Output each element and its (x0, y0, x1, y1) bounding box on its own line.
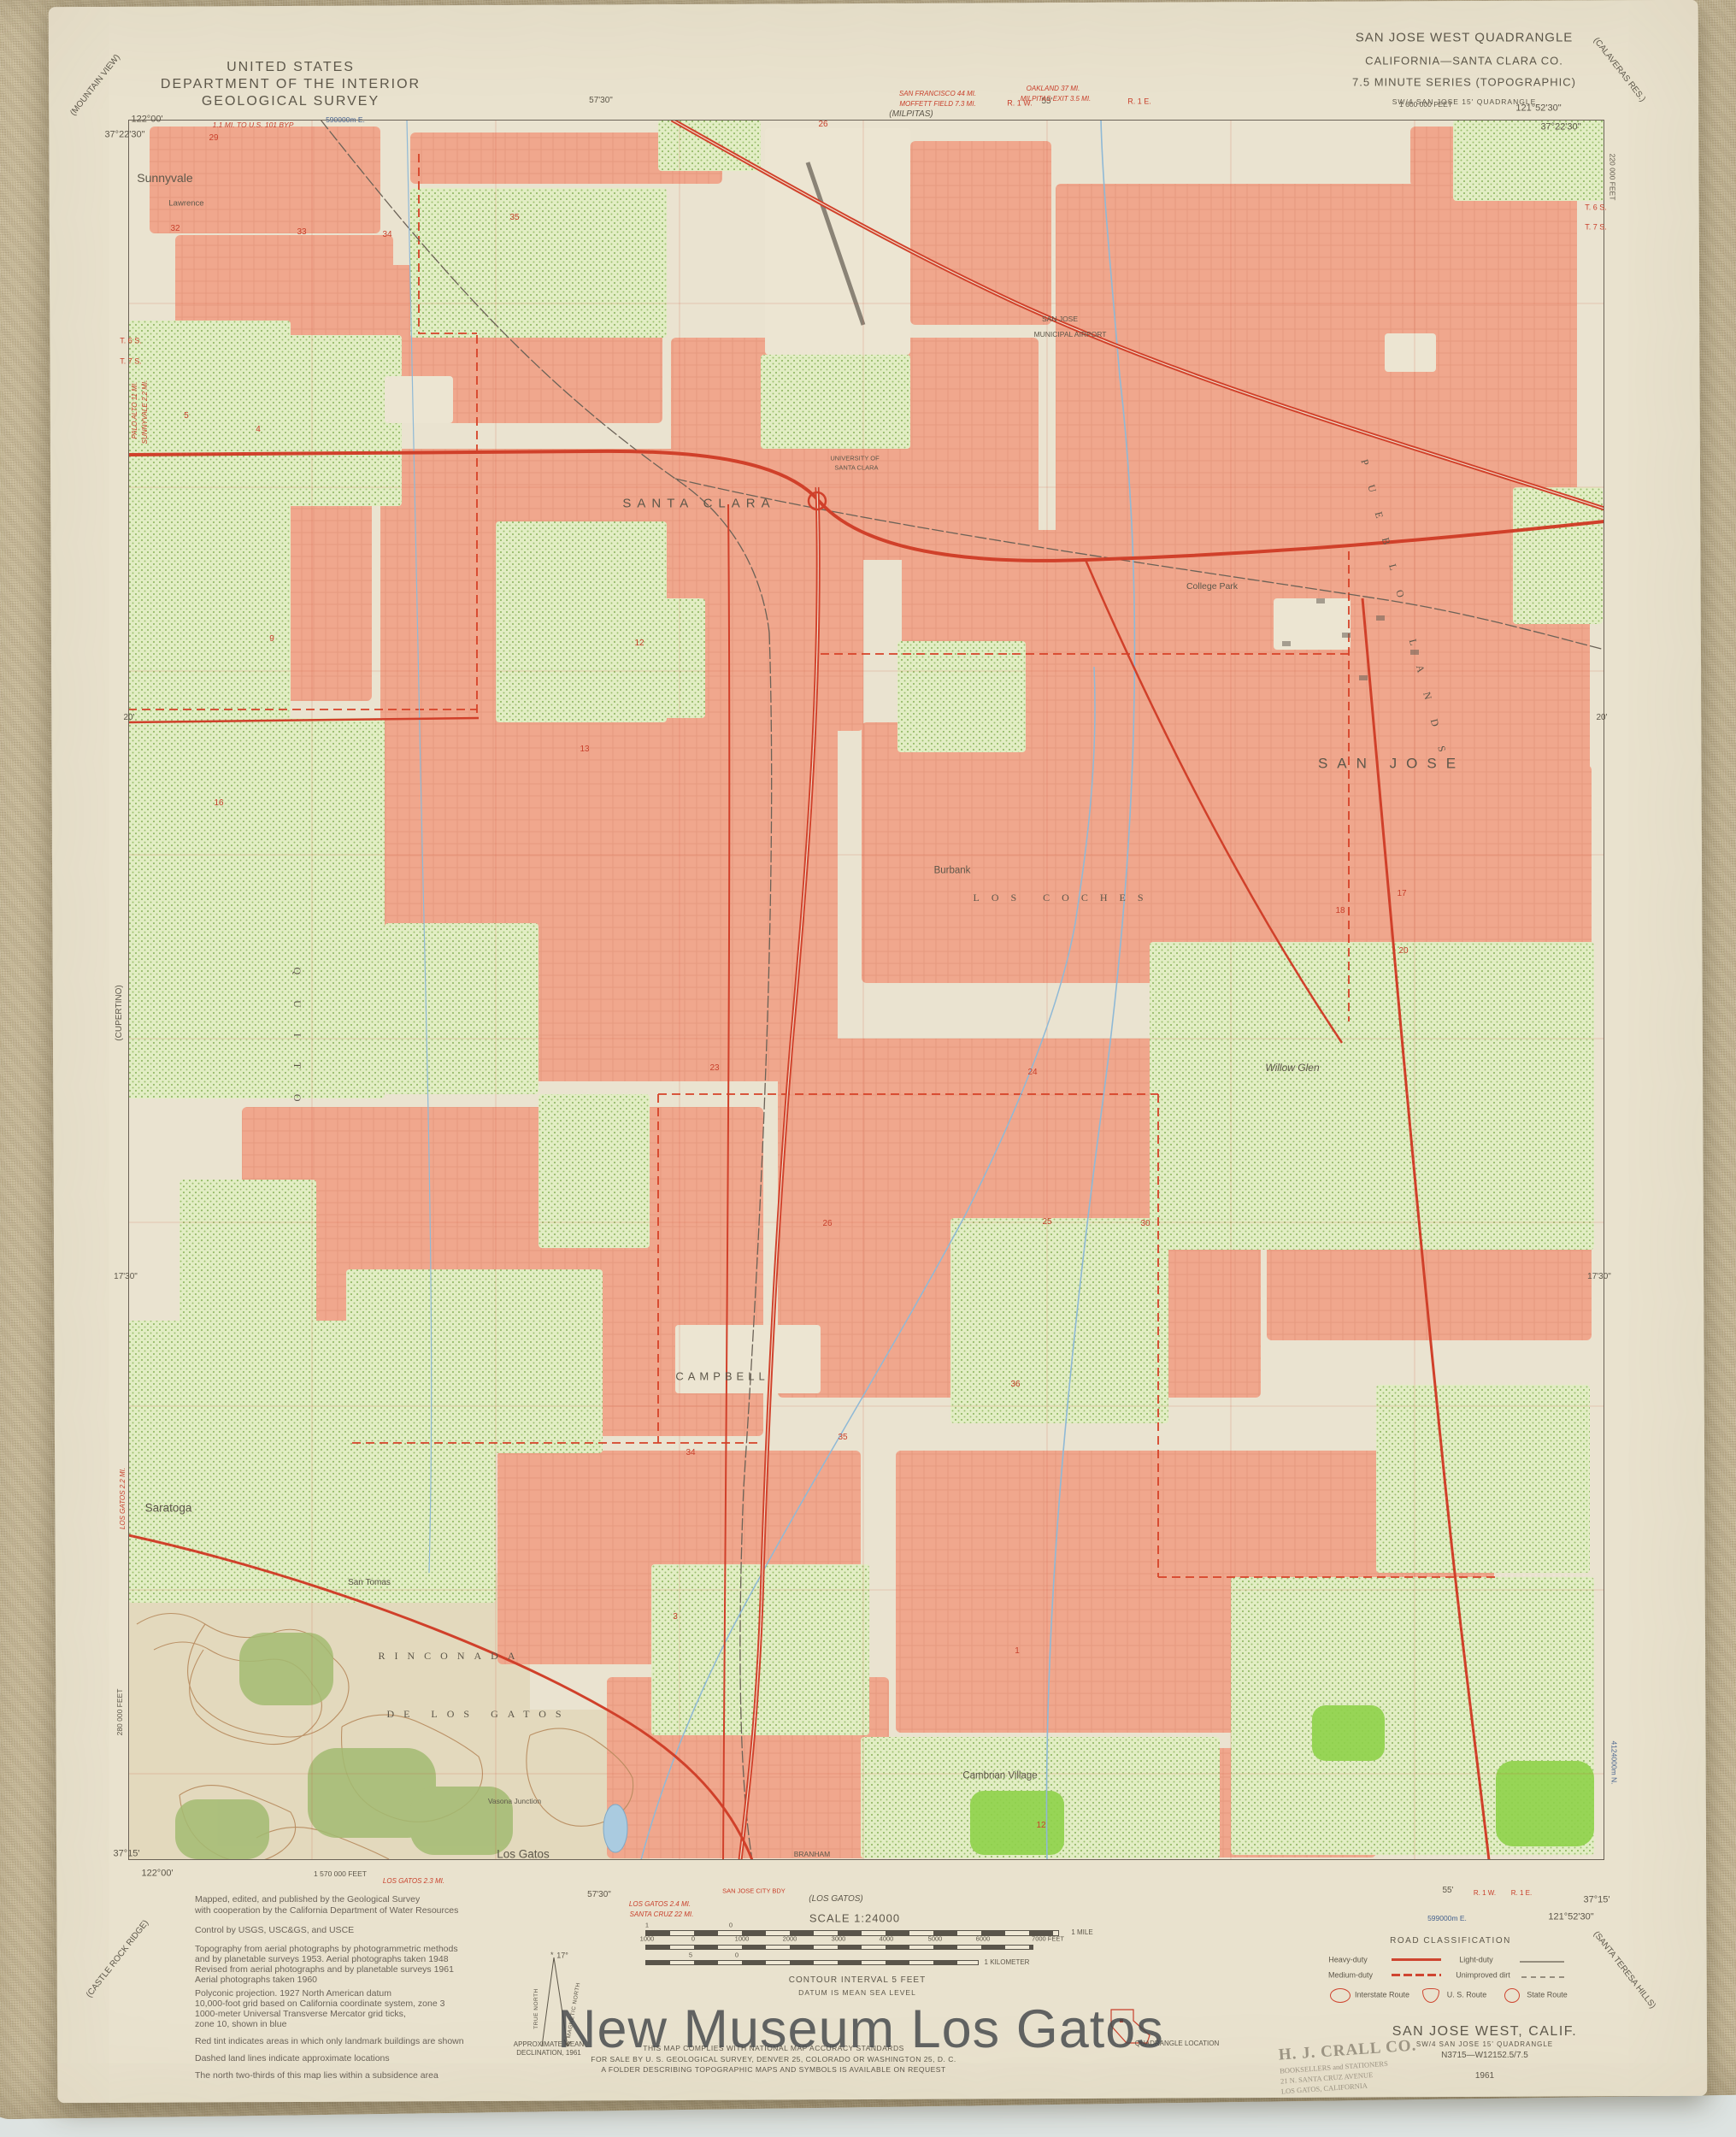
map-label: SANTA CLARA (834, 464, 878, 471)
section-number: 25 (1042, 1218, 1051, 1227)
credit-line: 1000-meter Universal Transverse Mercator… (195, 2010, 406, 2019)
margin-label: SANTA CRUZ 22 MI. (630, 1911, 694, 1918)
margin-label: 1.1 MI. TO U.S. 101 BYP (213, 121, 294, 129)
margin-label: (MILPITAS) (889, 110, 933, 119)
margin-label: 5000 (928, 1935, 943, 1942)
section-number: 32 (170, 225, 179, 233)
margin-label: 17'30" (114, 1273, 138, 1281)
datum-note: DATUM IS MEAN SEA LEVEL (798, 1989, 916, 1997)
section-number: 36 (1010, 1381, 1020, 1389)
section-number: 12 (1036, 1822, 1045, 1830)
map-body (128, 120, 1604, 1860)
margin-label: 37°15' (1584, 1896, 1610, 1905)
section-number: 33 (297, 228, 306, 237)
margin-label: 3000 (832, 1935, 846, 1942)
margin-label: 2000 (783, 1935, 797, 1942)
map-label: RINCONADA (379, 1651, 525, 1661)
map-label: DE LOS GATOS (386, 1709, 570, 1719)
section-number: 3 (673, 1613, 678, 1622)
margin-label: 280 000 FEET (116, 1689, 124, 1736)
margin-label: SAN JOSE CITY BDY (722, 1887, 786, 1894)
credit-line: Control by USGS, USC&GS, and USCE (195, 1926, 354, 1935)
scale-title: SCALE 1:24000 (809, 1913, 900, 1924)
road-class-light-label: Light-duty (1459, 1957, 1493, 1964)
margin-label: OAKLAND 37 MI. (1027, 85, 1080, 92)
quad-title-line1: SAN JOSE WEST QUADRANGLE (1356, 31, 1574, 45)
map-label: QUITO (292, 967, 303, 1127)
credit-line: zone 10, shown in blue (195, 2020, 286, 2029)
section-number: 13 (580, 745, 589, 754)
margin-label: 37°22'30" (104, 131, 144, 140)
section-number: 16 (214, 799, 223, 808)
road-class-heavy-label: Heavy-duty (1328, 1957, 1368, 1964)
credit-line: Dashed land lines indicate approximate l… (195, 2054, 390, 2063)
heavy-duty-line-sample (1392, 1958, 1441, 1961)
unimproved-line-sample (1521, 1976, 1566, 1978)
interstate-shield-icon (1330, 1988, 1351, 2003)
section-number: 34 (686, 1449, 695, 1457)
credit-line: The north two-thirds of this map lies wi… (195, 2071, 438, 2081)
true-north-label: TRUE NORTH (534, 1988, 540, 2029)
margin-label: LOS GATOS 2.2 MI. (120, 1468, 127, 1529)
margin-label: 4124000m N. (1610, 1740, 1618, 1784)
margin-label: 122°00' (141, 1869, 173, 1879)
road-class-title: ROAD CLASSIFICATION (1390, 1937, 1511, 1946)
margin-label: LOS GATOS 2.3 MI. (383, 1878, 444, 1885)
place-label-los-gatos: Los Gatos (497, 1848, 550, 1860)
place-label-airport: MUNICIPAL AIRPORT (1034, 331, 1107, 339)
margin-label: 1 570 000 FEET (314, 1870, 367, 1878)
map-label: UNIVERSITY OF (830, 455, 879, 462)
section-number: 30 (1140, 1220, 1150, 1228)
road-class-unimproved-label: Unimproved dirt (1456, 1972, 1510, 1980)
section-number: 35 (838, 1433, 847, 1442)
margin-label: 1 KILOMETER (985, 1959, 1030, 1966)
margin-label: PALO ALTO 11 MI. (132, 382, 138, 439)
margin-label: 37°22'30" (1540, 123, 1580, 132)
margin-label: 4000 (880, 1935, 894, 1942)
credit-line: Topography from aerial photographs by ph… (195, 1945, 458, 1954)
section-number: 9 (269, 635, 274, 644)
margin-label: 1000 (735, 1935, 750, 1942)
scale-bar-feet (645, 1945, 1033, 1950)
margin-label: T. 6 S. (1585, 204, 1607, 212)
margin-label: 0 (729, 1922, 733, 1928)
place-label-burbank: Burbank (934, 866, 971, 876)
usgs-header-line3: GEOLOGICAL SURVEY (202, 94, 380, 109)
map-name: SAN JOSE WEST, CALIF. (1392, 2025, 1577, 2039)
usgs-header-line1: UNITED STATES (227, 60, 355, 75)
credit-line: Mapped, edited, and published by the Geo… (195, 1895, 420, 1904)
map-label: BRANHAM (794, 1851, 831, 1858)
margin-label: 121°52'30" (1515, 104, 1561, 114)
margin-label: 0 (691, 1935, 695, 1942)
place-label-campbell: CAMPBELL (675, 1371, 768, 1382)
place-label-college-park: College Park (1186, 582, 1238, 592)
margin-label: 17'30" (1587, 1273, 1611, 1281)
margin-label: SAN FRANCISCO 44 MI. (899, 91, 976, 97)
quad-title-line2: CALIFORNIA—SANTA CLARA CO. (1365, 55, 1563, 68)
margin-label: 122°00' (131, 115, 162, 125)
margin-label: 1000 (640, 1935, 655, 1942)
interstate-route-label: Interstate Route (1355, 1992, 1409, 1999)
margin-label: 5 (689, 1952, 692, 1958)
margin-label: T. 7 S. (1585, 224, 1607, 232)
margin-label: 6000 (976, 1935, 991, 1942)
map-label: LOS COCHES (973, 892, 1155, 903)
margin-label: LOS GATOS 2.4 MI. (629, 1901, 691, 1908)
margin-label: T. 7 S. (120, 358, 142, 366)
section-number: 34 (382, 231, 391, 239)
scale-bar-km (645, 1960, 979, 1965)
usgs-header-line2: DEPARTMENT OF THE INTERIOR (161, 77, 421, 92)
map-name-sub: SW/4 SAN JOSE 15' QUADRANGLE (1416, 2041, 1553, 2048)
contour-interval-note: CONTOUR INTERVAL 5 FEET (789, 1976, 926, 1985)
map-code: N3715—W12152.5/7.5 (1441, 2052, 1528, 2060)
museum-watermark: New Museum Los Gatos (557, 1999, 1164, 2060)
section-number: 12 (634, 639, 644, 648)
place-label-san-tomas: San Tomas (348, 1579, 391, 1587)
place-label-lawrence: Lawrence (168, 199, 203, 208)
section-number: 20 (1398, 947, 1408, 956)
section-number: 29 (209, 134, 218, 143)
margin-label: 599000m E. (1427, 1915, 1467, 1922)
credit-line: 10,000-foot grid based on California coo… (195, 1999, 444, 2009)
margin-label: 0 (735, 1952, 739, 1958)
section-number: 26 (822, 1220, 832, 1228)
credit-line: Polyconic projection. 1927 North America… (195, 1989, 391, 1999)
margin-label: 220 000 FEET (1609, 154, 1616, 201)
margin-label: T. 6 S. (120, 338, 142, 345)
light-duty-line-sample (1520, 1961, 1564, 1963)
state-route-circle-icon (1504, 1988, 1520, 2003)
margin-label: 1 (645, 1922, 649, 1928)
map-label: SAN JOSE (1042, 315, 1078, 323)
margin-label: (LOS GATOS) (809, 1895, 863, 1904)
margin-label: 590000m E. (326, 116, 365, 124)
margin-label: MILPITAS EXIT 3.5 MI. (1021, 96, 1092, 103)
margin-label: 20' (123, 714, 134, 722)
place-label-sunnyvale: Sunnyvale (137, 172, 192, 184)
credit-line: Revised from aerial photographs and by p… (195, 1965, 454, 1975)
map-year: 1961 (1475, 2072, 1494, 2081)
credit-line: Aerial photographs taken 1960 (195, 1975, 317, 1985)
margin-label: SUNNYVALE 2.2 MI. (142, 380, 149, 444)
svg-text:*: * (550, 1951, 554, 1959)
bookseller-stamp: H. J. CRALL CO. BOOKSELLERS and STATIONE… (1278, 2036, 1419, 2095)
us-route-label: U. S. Route (1447, 1992, 1487, 1999)
margin-label: R. 1 W. (1474, 1890, 1496, 1897)
margin-label: MOFFETT FIELD 7.3 MI. (899, 101, 975, 108)
credit-line: Red tint indicates areas in which only l… (195, 2037, 464, 2046)
road-class-medium-label: Medium-duty (1328, 1972, 1373, 1980)
margin-label: 7000 FEET (1032, 1935, 1064, 1942)
margin-label: R. 1 E. (1127, 98, 1151, 106)
section-number: 23 (709, 1064, 719, 1073)
section-number: 4 (256, 426, 261, 434)
place-label-santa-clara: SANTA CLARA (622, 497, 775, 510)
quad-title-line3: 7.5 MINUTE SERIES (TOPOGRAPHIC) (1352, 76, 1576, 89)
place-label-saratoga: Saratoga (145, 1502, 192, 1514)
medium-duty-line-sample (1392, 1974, 1441, 1976)
margin-label: 1 600 000 FEET (1399, 101, 1452, 109)
reservoir (603, 1804, 627, 1852)
accuracy-line3: A FOLDER DESCRIBING TOPOGRAPHIC MAPS AND… (601, 2066, 945, 2074)
section-number: 5 (184, 412, 189, 421)
map-label: Vasona Junction (488, 1798, 541, 1805)
section-number: 18 (1335, 907, 1345, 915)
margin-label: 1 MILE (1071, 1929, 1092, 1936)
section-number: 1 (1015, 1647, 1020, 1656)
section-number: 17 (1397, 890, 1406, 898)
margin-label: 55' (1442, 1887, 1453, 1895)
scale-bar-miles (645, 1930, 1059, 1936)
margin-label: R. 1 E. (1511, 1890, 1532, 1897)
margin-label: 57'30" (587, 1891, 611, 1899)
place-label-cambrian-village: Cambrian Village (962, 1771, 1037, 1781)
margin-label: 37°15' (114, 1850, 140, 1859)
section-number: 26 (818, 121, 827, 129)
photo-of-topo-map: UNITED STATES DEPARTMENT OF THE INTERIOR… (0, 0, 1736, 2137)
margin-label: 121°52'30" (1548, 1913, 1593, 1922)
margin-label: (CUPERTINO) (115, 985, 124, 1040)
section-number: 24 (1027, 1068, 1037, 1077)
section-number: 35 (509, 214, 519, 222)
margin-label: 57'30" (589, 97, 613, 105)
place-label-willow-glen: Willow Glen (1265, 1063, 1319, 1073)
credit-line: with cooperation by the California Depar… (195, 1906, 458, 1916)
state-route-label: State Route (1527, 1992, 1568, 1999)
margin-label: 20' (1596, 714, 1607, 722)
credit-line: and by planetable surveys 1953. Aerial p… (195, 1955, 449, 1964)
declination-angle: 17° (556, 1952, 568, 1960)
